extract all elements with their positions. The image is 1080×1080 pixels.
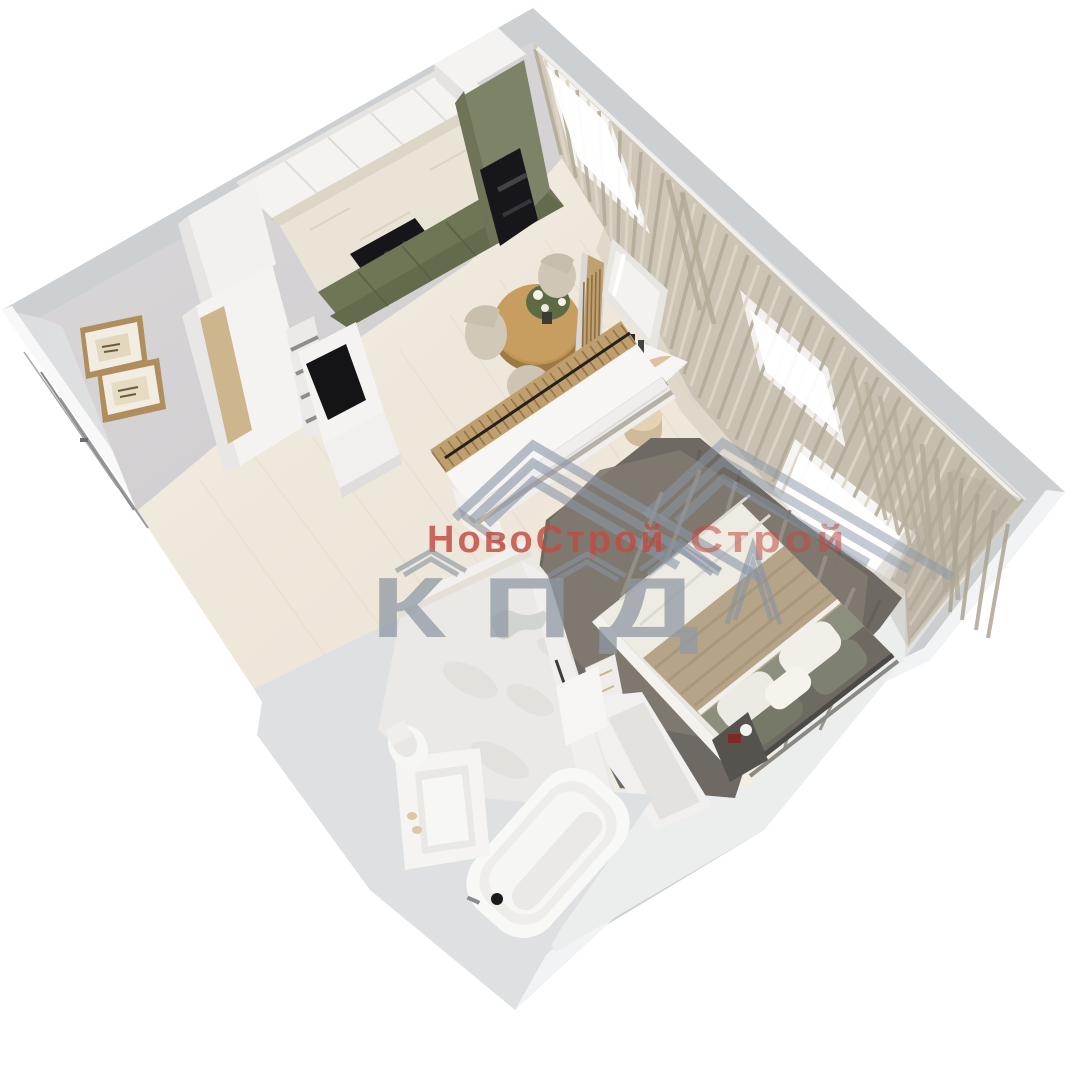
svg-text:Строй: Строй: [690, 519, 848, 561]
svg-text:К: К: [371, 561, 446, 656]
svg-text:НовоСтрой: НовоСтрой: [427, 519, 667, 561]
svg-text:П: П: [482, 561, 572, 656]
svg-text:Д: Д: [598, 561, 700, 656]
